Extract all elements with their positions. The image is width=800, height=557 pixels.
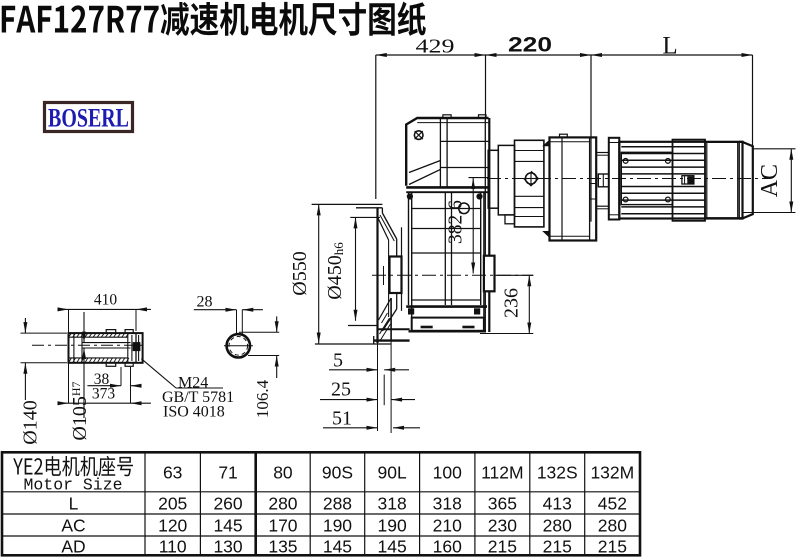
svg-text:145: 145 xyxy=(323,537,352,557)
svg-text:215: 215 xyxy=(543,537,572,557)
svg-text:120: 120 xyxy=(158,516,187,536)
svg-text:318: 318 xyxy=(433,494,462,514)
svg-text:L: L xyxy=(69,494,79,514)
svg-text:80: 80 xyxy=(273,463,293,483)
svg-text:71: 71 xyxy=(218,463,237,483)
svg-text:288: 288 xyxy=(323,494,352,514)
svg-text:365: 365 xyxy=(488,494,517,514)
svg-text:413: 413 xyxy=(543,494,572,514)
svg-text:280: 280 xyxy=(543,516,572,536)
svg-text:280: 280 xyxy=(598,516,627,536)
svg-text:130: 130 xyxy=(213,537,242,557)
svg-text:AD: AD xyxy=(61,537,85,557)
svg-text:215: 215 xyxy=(598,537,627,557)
svg-text:215: 215 xyxy=(488,537,517,557)
svg-text:205: 205 xyxy=(158,494,187,514)
svg-text:190: 190 xyxy=(323,516,352,536)
svg-text:145: 145 xyxy=(378,537,407,557)
svg-text:100: 100 xyxy=(433,463,462,483)
svg-text:260: 260 xyxy=(213,494,242,514)
svg-text:AC: AC xyxy=(61,516,85,536)
svg-text:132M: 132M xyxy=(590,463,634,483)
svg-text:145: 145 xyxy=(213,516,242,536)
svg-text:Motor Size: Motor Size xyxy=(23,476,122,495)
svg-text:318: 318 xyxy=(378,494,407,514)
svg-text:190: 190 xyxy=(378,516,407,536)
svg-text:210: 210 xyxy=(433,516,462,536)
svg-text:110: 110 xyxy=(159,537,187,557)
svg-text:132S: 132S xyxy=(537,463,578,483)
svg-text:135: 135 xyxy=(268,537,297,557)
svg-text:280: 280 xyxy=(268,494,297,514)
svg-text:90L: 90L xyxy=(378,463,407,483)
svg-text:170: 170 xyxy=(268,516,297,536)
svg-text:112M: 112M xyxy=(481,463,523,483)
svg-text:90S: 90S xyxy=(322,463,353,483)
svg-text:230: 230 xyxy=(488,516,517,536)
svg-text:160: 160 xyxy=(433,537,462,557)
svg-text:63: 63 xyxy=(163,463,182,483)
svg-text:452: 452 xyxy=(598,494,627,514)
